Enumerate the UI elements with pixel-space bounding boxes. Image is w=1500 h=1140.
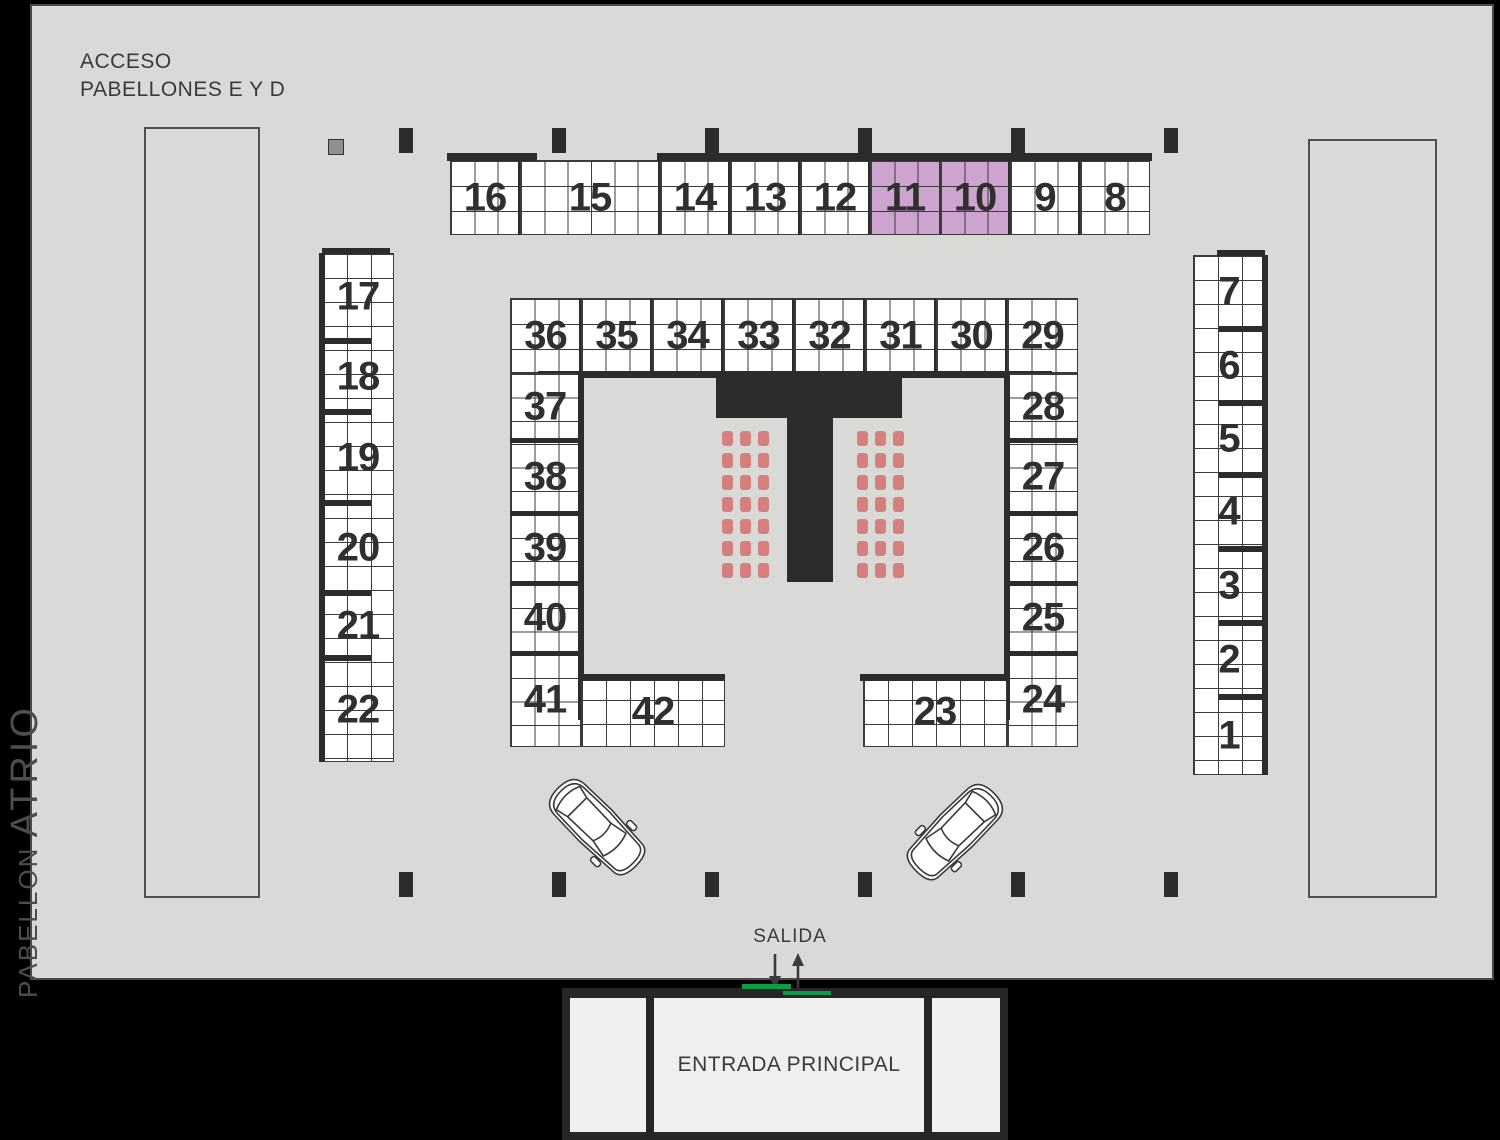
booth-22-label: 22 <box>337 688 380 733</box>
booth-35-label: 35 <box>595 314 638 359</box>
pillar <box>399 872 413 897</box>
chair <box>722 563 733 578</box>
chair <box>758 519 769 534</box>
chair <box>758 497 769 512</box>
entry-door-marker <box>783 991 831 995</box>
chair <box>857 475 868 490</box>
booth-29-label: 29 <box>1021 314 1064 359</box>
pillar <box>705 872 719 897</box>
top-wall-segment <box>657 153 1152 161</box>
pillar <box>552 128 566 153</box>
booth-37-label: 37 <box>524 384 567 429</box>
stage-top <box>716 373 902 418</box>
chair <box>740 475 751 490</box>
chair <box>722 475 733 490</box>
chair <box>893 431 904 446</box>
booth-39-label: 39 <box>524 526 567 571</box>
chair <box>740 519 751 534</box>
chair <box>893 541 904 556</box>
chair <box>740 453 751 468</box>
booth-1-label: 1 <box>1218 714 1239 759</box>
stage-stem <box>787 418 833 582</box>
chair <box>875 497 886 512</box>
pabellon-atrio-label: PABELLON ATRIO <box>4 704 47 998</box>
booth-6-label: 6 <box>1218 344 1239 389</box>
pillar <box>1164 128 1178 153</box>
pillar <box>705 128 719 153</box>
chair <box>722 453 733 468</box>
chair <box>857 497 868 512</box>
chair <box>857 431 868 446</box>
booth-18-label: 18 <box>337 354 380 399</box>
chair <box>857 453 868 468</box>
booth-3-label: 3 <box>1218 564 1239 609</box>
chair <box>875 563 886 578</box>
booth-17-label: 17 <box>337 275 380 320</box>
booth-11-label: 11 <box>885 176 925 221</box>
booth-38-label: 38 <box>524 454 567 499</box>
booth-9-label: 9 <box>1034 176 1055 221</box>
booth-23-top-wall <box>860 674 1007 681</box>
booth-25-label: 25 <box>1022 596 1065 641</box>
booth-16-label: 16 <box>464 176 507 221</box>
chair <box>893 563 904 578</box>
salida-label: SALIDA <box>753 926 827 948</box>
pabellon-text: PABELLON <box>13 847 43 998</box>
entrada-principal-label: ENTRADA PRINCIPAL <box>678 1053 901 1077</box>
booth-8-label: 8 <box>1104 176 1125 221</box>
booth-34-label: 34 <box>666 314 709 359</box>
utility-box <box>328 139 344 155</box>
chair <box>875 453 886 468</box>
chair <box>857 541 868 556</box>
booth-7-label: 7 <box>1218 270 1239 315</box>
booth-14-label: 14 <box>674 176 717 221</box>
chair <box>857 519 868 534</box>
booth-2-label: 2 <box>1218 638 1239 683</box>
booth-42-top-wall <box>578 674 725 681</box>
side-hall-right <box>1308 139 1437 898</box>
booth-41-label: 41 <box>524 678 567 723</box>
chair <box>758 475 769 490</box>
chair <box>740 563 751 578</box>
acceso-line2: PABELLONES E Y D <box>80 78 285 101</box>
chair <box>722 497 733 512</box>
floor-plan: ACCESO PABELLONES E Y D SALIDA <box>0 0 1500 1140</box>
chair <box>875 519 886 534</box>
chair <box>875 475 886 490</box>
booth-24-label: 24 <box>1022 678 1065 723</box>
chair <box>740 541 751 556</box>
entrance-building: ENTRADA PRINCIPAL <box>562 988 1008 1140</box>
chair <box>875 541 886 556</box>
booth-4-label: 4 <box>1218 490 1239 535</box>
chair <box>758 431 769 446</box>
chair <box>758 563 769 578</box>
chair <box>893 519 904 534</box>
chair <box>893 453 904 468</box>
booth-26-label: 26 <box>1022 526 1065 571</box>
booth-23-label: 23 <box>914 690 957 735</box>
booth-19-label: 19 <box>337 435 380 480</box>
booth-12-label: 12 <box>814 176 857 221</box>
side-hall-left <box>144 127 260 898</box>
chair <box>857 563 868 578</box>
chair <box>758 453 769 468</box>
chair <box>722 431 733 446</box>
booth-36-label: 36 <box>524 314 567 359</box>
exit-door-marker <box>742 984 791 989</box>
pillar <box>399 128 413 153</box>
booth-27-label: 27 <box>1022 454 1065 499</box>
acceso-label: ACCESO PABELLONES E Y D <box>80 48 285 104</box>
chair <box>722 541 733 556</box>
pillar <box>1011 128 1025 153</box>
chair <box>740 431 751 446</box>
pillar <box>858 872 872 897</box>
acceso-line1: ACCESO <box>80 50 172 73</box>
booth-32-label: 32 <box>808 314 851 359</box>
chair <box>893 497 904 512</box>
entrance-room-main: ENTRADA PRINCIPAL <box>654 998 924 1132</box>
chair <box>758 541 769 556</box>
booth-33-label: 33 <box>737 314 780 359</box>
pillar <box>858 128 872 153</box>
pillar <box>1011 872 1025 897</box>
chair <box>893 475 904 490</box>
chair <box>722 519 733 534</box>
atrio-text: ATRIO <box>4 704 46 837</box>
booth-42-label: 42 <box>632 690 675 735</box>
booth-40-label: 40 <box>524 596 567 641</box>
booth-10-label: 10 <box>954 176 997 221</box>
entrance-room-right <box>932 998 1000 1132</box>
entrance-room-left <box>570 998 646 1132</box>
booth-31-label: 31 <box>879 314 922 359</box>
booth-30-label: 30 <box>950 314 993 359</box>
chair <box>740 497 751 512</box>
pillar <box>1164 872 1178 897</box>
pillar <box>552 872 566 897</box>
chair <box>875 431 886 446</box>
booth-13-label: 13 <box>744 176 787 221</box>
booth-15-label: 15 <box>569 176 612 221</box>
booth-20-label: 20 <box>337 526 380 571</box>
booth-28-label: 28 <box>1022 384 1065 429</box>
booth-21-label: 21 <box>337 603 380 648</box>
booth-5-label: 5 <box>1218 417 1239 462</box>
top-wall-segment <box>447 153 537 161</box>
